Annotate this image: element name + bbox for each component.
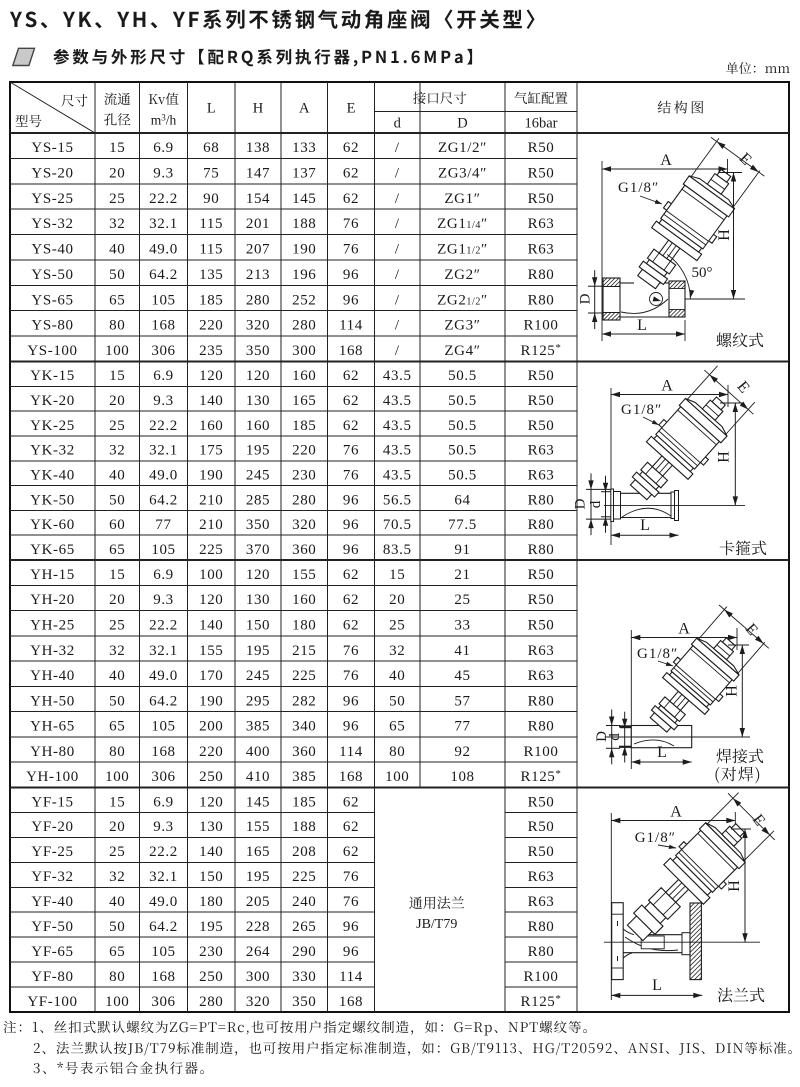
svg-text:YS-100: YS-100 — [27, 343, 77, 359]
svg-text:JB/T79: JB/T79 — [416, 917, 457, 932]
svg-text:215: 215 — [292, 643, 316, 659]
svg-text:ZG1″: ZG1″ — [444, 191, 480, 207]
svg-text:62: 62 — [343, 592, 359, 608]
svg-text:96: 96 — [343, 542, 359, 558]
svg-text:43.5: 43.5 — [383, 468, 412, 484]
svg-text:50.5: 50.5 — [448, 468, 477, 484]
svg-text:50.5: 50.5 — [448, 368, 477, 384]
svg-text:R50: R50 — [528, 368, 555, 384]
svg-text:YS-65: YS-65 — [31, 292, 73, 308]
svg-text:250: 250 — [199, 969, 223, 985]
svg-text:32.1: 32.1 — [149, 643, 178, 659]
svg-text:62: 62 — [343, 794, 359, 810]
svg-text:65: 65 — [109, 719, 125, 735]
svg-text:64.2: 64.2 — [149, 267, 178, 283]
svg-text:295: 295 — [246, 693, 270, 709]
svg-text:65: 65 — [109, 292, 125, 308]
svg-text:20: 20 — [389, 592, 405, 608]
svg-text:83.5: 83.5 — [383, 542, 412, 558]
svg-text:E: E — [733, 378, 752, 396]
svg-text:YS-25: YS-25 — [31, 191, 73, 207]
svg-text:9.3: 9.3 — [153, 393, 174, 409]
svg-text:280: 280 — [199, 994, 223, 1010]
svg-text:62: 62 — [343, 844, 359, 860]
svg-text:YS-20: YS-20 — [31, 165, 73, 181]
svg-text:160: 160 — [246, 418, 270, 434]
svg-text:62: 62 — [343, 567, 359, 583]
svg-text:E: E — [736, 150, 755, 169]
svg-text:16bar: 16bar — [524, 116, 557, 132]
svg-text:76: 76 — [343, 242, 359, 258]
svg-text:96: 96 — [343, 944, 359, 960]
svg-text:YF-40: YF-40 — [31, 894, 73, 910]
svg-text:15: 15 — [109, 567, 125, 583]
svg-text:YS-40: YS-40 — [31, 242, 73, 258]
svg-text:306: 306 — [151, 343, 175, 359]
svg-text:YH-65: YH-65 — [30, 719, 75, 735]
svg-text:168: 168 — [339, 343, 363, 359]
svg-text:228: 228 — [246, 919, 270, 935]
svg-text:R50: R50 — [528, 140, 555, 156]
svg-text:32.1: 32.1 — [149, 443, 178, 459]
svg-text:240: 240 — [292, 894, 316, 910]
svg-text:32: 32 — [109, 643, 125, 659]
svg-text:175: 175 — [199, 443, 223, 459]
svg-text:R63: R63 — [528, 468, 555, 484]
svg-text:YS-32: YS-32 — [31, 216, 73, 232]
svg-text:77: 77 — [454, 719, 470, 735]
svg-text:YF-20: YF-20 — [31, 819, 73, 835]
svg-text:100: 100 — [105, 994, 129, 1010]
svg-text:105: 105 — [151, 944, 175, 960]
svg-text:147: 147 — [246, 165, 270, 181]
svg-text:230: 230 — [292, 468, 316, 484]
svg-text:R63: R63 — [528, 894, 555, 910]
svg-text:R100: R100 — [524, 969, 559, 985]
svg-text:YH-32: YH-32 — [30, 643, 75, 659]
svg-text:245: 245 — [246, 468, 270, 484]
svg-text:A: A — [661, 378, 673, 395]
svg-text:YS-15: YS-15 — [31, 140, 73, 156]
svg-text:245: 245 — [246, 668, 270, 684]
svg-text:96: 96 — [343, 693, 359, 709]
svg-text:40: 40 — [109, 468, 125, 484]
svg-text:/: / — [395, 140, 400, 156]
svg-text:225: 225 — [199, 542, 223, 558]
svg-text:R50: R50 — [528, 393, 555, 409]
svg-text:201: 201 — [246, 216, 270, 232]
svg-text:77.5: 77.5 — [448, 517, 477, 533]
svg-text:190: 190 — [292, 242, 316, 258]
svg-text:E: E — [347, 101, 356, 117]
svg-text:22.2: 22.2 — [149, 191, 178, 207]
svg-text:135: 135 — [199, 267, 223, 283]
svg-text:40: 40 — [109, 242, 125, 258]
svg-text:280: 280 — [292, 492, 316, 508]
svg-text:22.2: 22.2 — [149, 418, 178, 434]
svg-text:207: 207 — [246, 242, 270, 258]
svg-text:62: 62 — [343, 368, 359, 384]
svg-text:57: 57 — [454, 693, 470, 709]
svg-text:YK-25: YK-25 — [30, 418, 75, 434]
svg-text:185: 185 — [292, 418, 316, 434]
svg-text:168: 168 — [339, 769, 363, 785]
svg-text:168: 168 — [151, 744, 175, 760]
svg-text:ZG11/2″: ZG11/2″ — [437, 242, 488, 258]
svg-text:ZG3″: ZG3″ — [444, 318, 480, 334]
svg-text:49.0: 49.0 — [149, 468, 178, 484]
svg-text:76: 76 — [343, 869, 359, 885]
svg-text:150: 150 — [199, 869, 223, 885]
svg-text:50°: 50° — [692, 265, 713, 281]
svg-text:YF-15: YF-15 — [31, 794, 73, 810]
svg-text:20: 20 — [109, 819, 125, 835]
svg-text:306: 306 — [151, 994, 175, 1010]
svg-text:A: A — [670, 804, 682, 821]
svg-text:G1/8″: G1/8″ — [618, 180, 659, 196]
svg-text:32: 32 — [389, 643, 405, 659]
svg-text:185: 185 — [199, 292, 223, 308]
svg-text:168: 168 — [339, 994, 363, 1010]
svg-text:YH-15: YH-15 — [30, 567, 75, 583]
svg-text:140: 140 — [199, 393, 223, 409]
svg-text:115: 115 — [199, 216, 223, 232]
svg-text:L: L — [207, 101, 216, 117]
svg-text:32.1: 32.1 — [149, 216, 178, 232]
svg-text:62: 62 — [343, 140, 359, 156]
svg-text:64.2: 64.2 — [149, 492, 178, 508]
svg-text:190: 190 — [199, 468, 223, 484]
svg-text:210: 210 — [199, 517, 223, 533]
svg-text:170: 170 — [199, 668, 223, 684]
svg-text:282: 282 — [292, 693, 316, 709]
svg-text:208: 208 — [292, 844, 316, 860]
svg-text:91: 91 — [454, 542, 470, 558]
svg-text:32: 32 — [109, 443, 125, 459]
svg-text:115: 115 — [199, 242, 223, 258]
svg-text:6.9: 6.9 — [153, 794, 174, 810]
svg-text:165: 165 — [292, 393, 316, 409]
svg-text:96: 96 — [343, 292, 359, 308]
svg-text:43.5: 43.5 — [383, 368, 412, 384]
svg-text:R80: R80 — [528, 944, 555, 960]
svg-text:41: 41 — [454, 643, 470, 659]
svg-text:65: 65 — [109, 542, 125, 558]
svg-text:YK-60: YK-60 — [30, 517, 75, 533]
svg-text:50.5: 50.5 — [448, 443, 477, 459]
svg-text:32.1: 32.1 — [149, 869, 178, 885]
svg-text:235: 235 — [199, 343, 223, 359]
svg-text:L: L — [652, 977, 662, 994]
svg-text:96: 96 — [343, 919, 359, 935]
svg-text:YK-20: YK-20 — [30, 393, 75, 409]
svg-text:76: 76 — [343, 668, 359, 684]
svg-text:50: 50 — [109, 919, 125, 935]
svg-text:137: 137 — [292, 165, 316, 181]
svg-text:A: A — [299, 101, 310, 117]
svg-text:ZG4″: ZG4″ — [444, 343, 480, 359]
svg-text:65: 65 — [109, 944, 125, 960]
svg-text:R80: R80 — [528, 292, 555, 308]
svg-text:96: 96 — [343, 492, 359, 508]
svg-text:R50: R50 — [528, 567, 555, 583]
svg-text:D: D — [578, 293, 594, 304]
svg-text:9.3: 9.3 — [153, 819, 174, 835]
svg-text:50: 50 — [389, 693, 405, 709]
svg-text:64.2: 64.2 — [149, 919, 178, 935]
svg-text:120: 120 — [199, 592, 223, 608]
svg-text:R50: R50 — [528, 165, 555, 181]
svg-text:15: 15 — [389, 567, 405, 583]
svg-text:145: 145 — [246, 794, 270, 810]
svg-text:68: 68 — [203, 140, 219, 156]
svg-text:195: 195 — [246, 443, 270, 459]
svg-text:6.9: 6.9 — [153, 140, 174, 156]
svg-text:76: 76 — [343, 643, 359, 659]
svg-text:H: H — [715, 451, 732, 463]
svg-text:d: d — [588, 500, 604, 508]
svg-text:15: 15 — [109, 140, 125, 156]
svg-text:230: 230 — [199, 944, 223, 960]
svg-text:160: 160 — [199, 418, 223, 434]
svg-text:9.3: 9.3 — [153, 592, 174, 608]
svg-text:50.5: 50.5 — [448, 418, 477, 434]
svg-text:60: 60 — [109, 517, 125, 533]
svg-text:R80: R80 — [528, 267, 555, 283]
svg-text:195: 195 — [199, 919, 223, 935]
svg-text:225: 225 — [292, 869, 316, 885]
svg-text:D: D — [457, 116, 467, 132]
svg-text:180: 180 — [199, 894, 223, 910]
svg-text:40: 40 — [109, 668, 125, 684]
svg-text:R125*: R125* — [520, 342, 561, 359]
svg-text:114: 114 — [339, 744, 363, 760]
svg-text:25: 25 — [109, 844, 125, 860]
svg-text:G1/8″: G1/8″ — [637, 646, 678, 662]
svg-text:15: 15 — [109, 368, 125, 384]
svg-text:R50: R50 — [528, 191, 555, 207]
svg-text:50: 50 — [109, 693, 125, 709]
svg-text:185: 185 — [292, 794, 316, 810]
svg-text:43.5: 43.5 — [383, 443, 412, 459]
svg-text:65: 65 — [389, 719, 405, 735]
svg-text:H: H — [716, 229, 733, 241]
svg-text:YF-32: YF-32 — [31, 869, 73, 885]
svg-text:6.9: 6.9 — [153, 368, 174, 384]
svg-text:150: 150 — [246, 618, 270, 634]
svg-text:9.3: 9.3 — [153, 165, 174, 181]
svg-text:R80: R80 — [528, 492, 555, 508]
svg-text:360: 360 — [292, 744, 316, 760]
svg-text:22.2: 22.2 — [149, 618, 178, 634]
svg-text:120: 120 — [199, 368, 223, 384]
svg-text:ZG11/4″: ZG11/4″ — [437, 216, 488, 232]
svg-text:188: 188 — [292, 819, 316, 835]
svg-text:300: 300 — [292, 343, 316, 359]
svg-text:R80: R80 — [528, 919, 555, 935]
svg-text:130: 130 — [246, 592, 270, 608]
svg-text:280: 280 — [292, 318, 316, 334]
svg-text:165: 165 — [246, 844, 270, 860]
svg-text:40: 40 — [109, 894, 125, 910]
svg-text:120: 120 — [246, 567, 270, 583]
svg-text:75: 75 — [203, 165, 219, 181]
svg-text:196: 196 — [292, 267, 316, 283]
svg-text:80: 80 — [389, 744, 405, 760]
svg-text:340: 340 — [292, 719, 316, 735]
svg-text:YK-65: YK-65 — [30, 542, 75, 558]
svg-text:A: A — [660, 152, 672, 169]
svg-text:YF-25: YF-25 — [31, 844, 73, 860]
svg-text:R80: R80 — [528, 693, 555, 709]
svg-text:220: 220 — [199, 744, 223, 760]
svg-text:76: 76 — [343, 443, 359, 459]
svg-text:YK-50: YK-50 — [30, 492, 75, 508]
svg-text:33: 33 — [454, 618, 470, 634]
svg-text:25: 25 — [109, 618, 125, 634]
svg-text:50: 50 — [109, 492, 125, 508]
svg-text:130: 130 — [246, 393, 270, 409]
svg-text:385: 385 — [292, 769, 316, 785]
svg-text:76: 76 — [343, 468, 359, 484]
svg-text:/: / — [395, 292, 400, 308]
svg-text:114: 114 — [339, 969, 363, 985]
svg-text:YK-40: YK-40 — [30, 468, 75, 484]
svg-text:62: 62 — [343, 418, 359, 434]
svg-text:155: 155 — [199, 643, 223, 659]
svg-text:R50: R50 — [528, 819, 555, 835]
svg-text:62: 62 — [343, 393, 359, 409]
svg-text:/: / — [395, 242, 400, 258]
svg-text:E: E — [742, 621, 761, 640]
svg-text:140: 140 — [199, 618, 223, 634]
svg-text:R63: R63 — [528, 643, 555, 659]
svg-text:R125*: R125* — [520, 993, 561, 1010]
svg-text:220: 220 — [292, 443, 316, 459]
svg-text:25: 25 — [389, 618, 405, 634]
svg-text:YF-80: YF-80 — [31, 969, 73, 985]
svg-text:77: 77 — [155, 517, 171, 533]
svg-text:YH-80: YH-80 — [30, 744, 75, 760]
svg-text:200: 200 — [199, 719, 223, 735]
svg-text:YH-50: YH-50 — [30, 693, 75, 709]
svg-text:168: 168 — [151, 969, 175, 985]
svg-text:32: 32 — [109, 216, 125, 232]
svg-text:62: 62 — [343, 191, 359, 207]
svg-text:50.5: 50.5 — [448, 393, 477, 409]
svg-text:G1/8″: G1/8″ — [635, 830, 676, 846]
svg-text:108: 108 — [450, 769, 474, 785]
svg-text:R63: R63 — [528, 216, 555, 232]
svg-text:YF-100: YF-100 — [27, 994, 77, 1010]
svg-text:225: 225 — [292, 668, 316, 684]
svg-text:E: E — [749, 811, 768, 829]
svg-text:205: 205 — [246, 894, 270, 910]
svg-text:120: 120 — [199, 794, 223, 810]
svg-text:168: 168 — [151, 318, 175, 334]
svg-text:56.5: 56.5 — [383, 492, 412, 508]
svg-text:49.0: 49.0 — [149, 242, 178, 258]
svg-text:R100: R100 — [524, 744, 559, 760]
svg-text:96: 96 — [343, 267, 359, 283]
svg-text:/: / — [395, 191, 400, 207]
svg-text:G1/8″: G1/8″ — [621, 402, 662, 418]
svg-text:80: 80 — [109, 318, 125, 334]
svg-text:100: 100 — [105, 769, 129, 785]
svg-text:70.5: 70.5 — [383, 517, 412, 533]
svg-text:20: 20 — [109, 165, 125, 181]
svg-text:133: 133 — [292, 140, 316, 156]
svg-text:64.2: 64.2 — [149, 693, 178, 709]
svg-text:ZG2″: ZG2″ — [444, 267, 480, 283]
svg-text:155: 155 — [246, 819, 270, 835]
svg-text:280: 280 — [246, 292, 270, 308]
svg-text:YH-100: YH-100 — [26, 769, 79, 785]
svg-text:L: L — [640, 517, 650, 534]
svg-text:62: 62 — [343, 165, 359, 181]
svg-text:64: 64 — [454, 492, 470, 508]
svg-text:140: 140 — [199, 844, 223, 860]
svg-text:d: d — [394, 116, 402, 132]
svg-text:105: 105 — [151, 719, 175, 735]
svg-text:49.0: 49.0 — [149, 668, 178, 684]
svg-text:105: 105 — [151, 542, 175, 558]
svg-text:R125*: R125* — [520, 768, 561, 785]
svg-text:L: L — [657, 744, 667, 761]
svg-text:100: 100 — [199, 567, 223, 583]
svg-text:410: 410 — [246, 769, 270, 785]
svg-text:80: 80 — [109, 744, 125, 760]
svg-text:265: 265 — [292, 919, 316, 935]
svg-text:145: 145 — [292, 191, 316, 207]
svg-text:320: 320 — [246, 994, 270, 1010]
svg-text:43.5: 43.5 — [383, 418, 412, 434]
svg-text:45: 45 — [454, 668, 470, 684]
svg-text:40: 40 — [389, 668, 405, 684]
svg-text:180: 180 — [292, 618, 316, 634]
svg-text:49.0: 49.0 — [149, 894, 178, 910]
svg-text:6.9: 6.9 — [153, 567, 174, 583]
svg-text:R63: R63 — [528, 242, 555, 258]
svg-text:43.5: 43.5 — [383, 393, 412, 409]
svg-text:290: 290 — [292, 944, 316, 960]
svg-text:15: 15 — [109, 794, 125, 810]
svg-text:385: 385 — [246, 719, 270, 735]
svg-text:R50: R50 — [528, 618, 555, 634]
svg-text:76: 76 — [343, 216, 359, 232]
svg-text:100: 100 — [105, 343, 129, 359]
svg-text:R63: R63 — [528, 869, 555, 885]
svg-text:252: 252 — [292, 292, 316, 308]
svg-text:160: 160 — [292, 592, 316, 608]
svg-text:76: 76 — [343, 894, 359, 910]
svg-text:YS-50: YS-50 — [31, 267, 73, 283]
svg-text:160: 160 — [292, 368, 316, 384]
svg-text:/: / — [395, 318, 400, 334]
svg-text:105: 105 — [151, 292, 175, 308]
svg-text:330: 330 — [292, 969, 316, 985]
svg-text:213: 213 — [246, 267, 270, 283]
svg-text:32: 32 — [109, 869, 125, 885]
svg-text:D: D — [573, 498, 589, 509]
svg-text:/: / — [395, 267, 400, 283]
svg-text:100: 100 — [385, 769, 409, 785]
svg-text:80: 80 — [109, 969, 125, 985]
svg-text:320: 320 — [292, 517, 316, 533]
svg-text:R63: R63 — [528, 668, 555, 684]
svg-text:195: 195 — [246, 643, 270, 659]
svg-text:21: 21 — [454, 567, 470, 583]
